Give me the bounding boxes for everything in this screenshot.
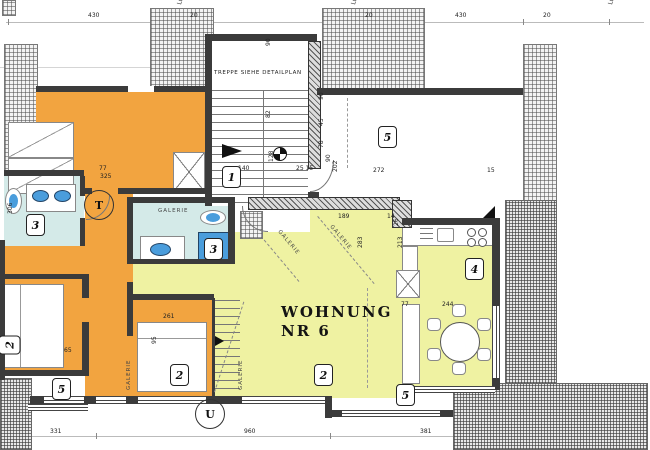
wall xyxy=(82,322,89,376)
apartment-title-line2: NR 6 xyxy=(281,322,392,341)
sink xyxy=(150,243,171,256)
sink xyxy=(54,190,71,202)
dim-tick xyxy=(330,433,331,439)
door-gap xyxy=(128,86,154,92)
dining-right-window xyxy=(492,306,500,380)
dim-label: 430 xyxy=(455,13,466,19)
living-top-wall xyxy=(248,197,400,210)
wall xyxy=(80,218,85,246)
stairwell-wall-top xyxy=(205,34,317,41)
chair xyxy=(477,318,491,331)
apartment-title-line1: WOHNUNG xyxy=(281,303,392,322)
dim-label: 331 xyxy=(50,429,61,435)
stairwell-wall-right xyxy=(308,41,321,169)
living-strip-under-bath xyxy=(133,264,212,298)
bottom-window-wall xyxy=(30,396,332,404)
wall xyxy=(85,188,92,194)
dim-label: 960 xyxy=(244,429,255,435)
wall xyxy=(127,259,235,264)
stairwell-wall-left xyxy=(205,34,212,206)
floorplan-canvas: WOHNUNG NR 6 TREPPE SIEHE DETAILPLAN 430… xyxy=(0,0,650,450)
chair xyxy=(477,348,491,361)
shaft-box xyxy=(396,270,420,298)
wall xyxy=(4,170,84,176)
bed xyxy=(4,284,64,368)
outer-wall-left xyxy=(0,240,5,380)
wall xyxy=(206,396,242,404)
wall xyxy=(330,410,342,417)
stove-burner xyxy=(478,238,487,247)
chair xyxy=(452,304,466,317)
dim-label: Lü 20 xyxy=(351,0,361,6)
dim-label: Lü 20 xyxy=(608,0,618,6)
dim-label: 272 xyxy=(373,168,384,174)
stair-landing xyxy=(212,41,308,90)
stove-burner xyxy=(478,228,487,237)
dim-label: 381 xyxy=(420,429,431,435)
stair-divider-line xyxy=(263,90,264,206)
hatch-right-strip xyxy=(523,44,557,202)
hatch-roof-right xyxy=(505,200,557,390)
toilet-bowl xyxy=(9,194,18,208)
door-leaf-icon xyxy=(483,206,495,218)
dim-tick xyxy=(523,19,524,25)
dim-tick xyxy=(96,433,97,439)
room-number-tag: 5 xyxy=(378,126,397,148)
wall xyxy=(30,396,44,404)
chair xyxy=(427,318,441,331)
dim-label: Lü 20 xyxy=(177,0,187,6)
roof-dashed-line-vertical xyxy=(347,98,349,168)
dim-label: 430 xyxy=(88,13,99,19)
stove-burner xyxy=(467,238,476,247)
wall xyxy=(127,294,214,300)
stair-note: TREPPE SIEHE DETAILPLAN xyxy=(214,70,302,76)
tall-cabinet xyxy=(402,246,418,272)
hatch-balcony-bottom-left xyxy=(0,378,32,450)
wall xyxy=(36,86,206,92)
dish-rack xyxy=(420,228,433,242)
wall xyxy=(118,188,206,194)
sink xyxy=(32,190,49,202)
bed xyxy=(137,322,207,392)
survey-marker-icon xyxy=(273,147,287,161)
dim-label: 20 xyxy=(543,13,551,19)
wall xyxy=(82,274,89,298)
kitchen-sink xyxy=(437,228,454,242)
wall xyxy=(317,88,523,95)
dining-table xyxy=(440,322,480,362)
kitchen-right-wall xyxy=(492,218,500,306)
gallery-stair-arrow-icon xyxy=(215,336,224,346)
bottom-right-window-wall xyxy=(330,410,453,417)
corner-desk xyxy=(173,152,205,192)
gallery-stair-wall-edge xyxy=(212,298,215,398)
wall xyxy=(133,197,233,203)
wall xyxy=(84,396,96,404)
dim-tick xyxy=(609,19,610,25)
wall xyxy=(126,396,138,404)
dim-label: 15 xyxy=(487,168,495,174)
chair xyxy=(452,362,466,375)
wardrobe xyxy=(8,122,74,158)
toilet-bowl xyxy=(206,213,220,222)
dim-tick xyxy=(8,19,9,25)
window-bay-cabinet xyxy=(402,304,420,384)
dining-bottom-window xyxy=(410,386,495,393)
wall xyxy=(2,274,86,279)
hatch-stair-right-block xyxy=(322,8,425,90)
wall xyxy=(127,282,133,336)
wall xyxy=(127,197,133,263)
hatch-roof-bottom-right xyxy=(453,383,648,450)
wall xyxy=(440,410,453,417)
apartment-title: WOHNUNG NR 6 xyxy=(281,303,392,341)
hatch-top-left-corner xyxy=(2,0,16,16)
stair-direction-arrow-icon xyxy=(222,144,242,158)
chair xyxy=(427,348,441,361)
kitchen-top-wall xyxy=(402,218,500,225)
stove-burner xyxy=(467,228,476,237)
wall xyxy=(2,370,88,376)
left-bottom-window xyxy=(28,404,88,411)
wall xyxy=(228,197,235,263)
door-arc xyxy=(310,160,334,192)
